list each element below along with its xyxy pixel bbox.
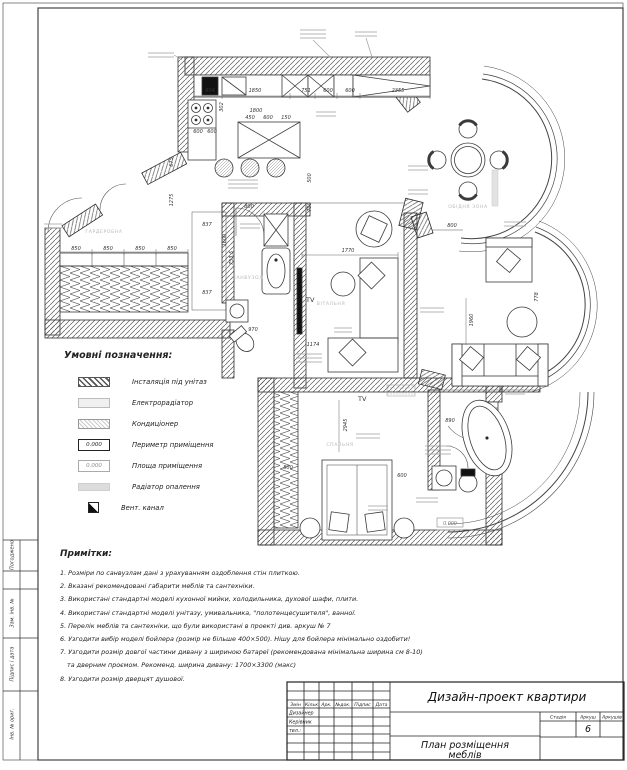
hanging-rail bbox=[60, 266, 188, 312]
note-line: 8. Узгодити розмір дверцят душової. bbox=[60, 673, 490, 686]
hatch-swatch bbox=[78, 377, 110, 387]
stamp-label: Погоджено bbox=[10, 540, 16, 570]
legend-label: Інсталяція під унітаз bbox=[132, 378, 207, 386]
dim: 837 bbox=[202, 290, 212, 296]
dim: 753,5 bbox=[229, 251, 235, 265]
area-value-box: 0.000 bbox=[78, 460, 110, 472]
pouf bbox=[331, 272, 355, 296]
bar-stool bbox=[215, 159, 233, 177]
bar-stool bbox=[267, 159, 285, 177]
dim: 970 bbox=[248, 327, 258, 333]
bathroom-se bbox=[432, 394, 521, 527]
tb-col: №док. bbox=[335, 702, 351, 708]
legend-item: Кондиціонер bbox=[64, 413, 279, 434]
note-line: 5. Перелік меблів та сантехніки, що були… bbox=[60, 620, 490, 633]
tb-col: Кільк bbox=[305, 702, 318, 708]
dim: 1174 bbox=[307, 342, 320, 348]
dim: 600 bbox=[345, 88, 355, 94]
dim: 675 bbox=[169, 157, 175, 167]
room-label-wardrobe: ГАРДЕРОБНА bbox=[85, 229, 123, 235]
dim: 800 bbox=[244, 204, 254, 210]
dim: 1770 bbox=[342, 248, 355, 254]
legend-label: Площа приміщення bbox=[132, 462, 202, 470]
note-line: 6. Узгодити вибір моделі бойлера (розмір… bbox=[60, 633, 490, 646]
dim: 500 bbox=[307, 173, 313, 183]
bedside-table bbox=[300, 518, 320, 538]
dim: 150 bbox=[281, 115, 291, 121]
project-title: Дизайн-проект квартири bbox=[427, 690, 587, 704]
area-value: 0.000 bbox=[443, 521, 457, 527]
notes: Примітки: 1. Розміри по санвузлам дані з… bbox=[60, 549, 490, 686]
dim: 850 bbox=[71, 246, 81, 252]
legend-item: Радіатор опалення bbox=[64, 476, 279, 497]
dim: 850 bbox=[167, 246, 177, 252]
dim: 2945 bbox=[343, 419, 349, 432]
dim: 1800 bbox=[250, 108, 263, 114]
dim: 800 bbox=[283, 465, 293, 471]
tb-role: тел.: bbox=[289, 729, 301, 734]
dim: 778 bbox=[534, 292, 540, 302]
tb-col: Арк. bbox=[320, 702, 331, 708]
legend-item: 0.000 Периметр приміщення bbox=[64, 434, 279, 455]
note-line: 7. Узгодити розмір довгої частини дивану… bbox=[60, 646, 490, 659]
tb-col: Підпис bbox=[354, 702, 371, 708]
notes-title: Примітки: bbox=[60, 549, 490, 559]
bed bbox=[322, 460, 392, 540]
tb-col: Дата bbox=[375, 702, 388, 708]
dim: 890 bbox=[445, 418, 455, 424]
dim: 600 bbox=[323, 88, 333, 94]
air-conditioner bbox=[387, 385, 415, 396]
light-swatch bbox=[78, 398, 110, 408]
armchair bbox=[486, 238, 532, 282]
stamp-label: Зам. інв. № bbox=[10, 598, 16, 627]
tb-role: Керівник bbox=[289, 720, 312, 726]
perimeter-value-box: 0.000 bbox=[78, 439, 110, 451]
sheet-number: 6 bbox=[585, 724, 591, 735]
legend-label: Периметр приміщення bbox=[132, 441, 214, 449]
legend-item: Інсталяція під унітаз bbox=[64, 371, 279, 392]
dim: 600 bbox=[263, 115, 273, 121]
room-label-living: ВІТАЛЬНЯ bbox=[317, 301, 346, 307]
dim: 600 bbox=[397, 473, 407, 479]
stamp-label: Інв. № ориг. bbox=[10, 708, 16, 739]
legend-item: Вент. канал bbox=[64, 497, 279, 518]
left-stamp: Погоджено Зам. інв. № Підпис і дата Інв.… bbox=[10, 540, 16, 740]
radiator-swatch bbox=[78, 483, 110, 491]
legend-label: Вент. канал bbox=[121, 504, 164, 512]
dim: 2355 bbox=[392, 88, 405, 94]
note-line: 2. Вказані рекомендовані габарити меблів… bbox=[60, 580, 490, 593]
tb-stage-col: Аркушів bbox=[601, 715, 622, 721]
note-line: 1. Розміри по санвузлам дані з урахуванн… bbox=[60, 567, 490, 580]
pillow bbox=[329, 512, 349, 532]
dim: 1275 bbox=[169, 194, 175, 207]
note-line: 3. Використані стандартні моделі кухонно… bbox=[60, 593, 490, 606]
dim: 1850 bbox=[249, 88, 262, 94]
dim: 604 bbox=[205, 88, 215, 94]
toilet bbox=[459, 469, 477, 492]
bedroom bbox=[274, 385, 498, 540]
window-sill bbox=[492, 170, 498, 206]
room-label-dining: ОБІДНЯ ЗОНА bbox=[448, 204, 488, 210]
tb-stage-col: Стадія bbox=[550, 715, 566, 721]
bar-stool bbox=[241, 159, 259, 177]
pillow bbox=[365, 512, 385, 532]
sofa bbox=[452, 344, 548, 386]
bathroom-center bbox=[226, 214, 290, 355]
dim: 800 bbox=[447, 223, 457, 229]
dim: 600 bbox=[207, 129, 217, 135]
dim: 850 bbox=[103, 246, 113, 252]
bedside-table bbox=[394, 518, 414, 538]
tv-panel bbox=[297, 268, 302, 334]
dim: 700 bbox=[307, 202, 313, 212]
dining-chair bbox=[490, 151, 508, 169]
note-line: 4. Використані стандартні моделі унітазу… bbox=[60, 607, 490, 620]
legend-label: Кондиціонер bbox=[132, 420, 178, 428]
light-hatch-swatch bbox=[78, 419, 110, 429]
note-line: та дверним проємом. Рекоменд. ширина див… bbox=[60, 659, 490, 672]
legend-title: Умовні позначення: bbox=[64, 350, 279, 361]
title-block-texts: Змін Кільк Арк. №док. Підпис Дата Дизайн… bbox=[288, 690, 622, 761]
dim: 1960 bbox=[469, 314, 475, 327]
tb-stage-col: Аркуш bbox=[579, 715, 597, 721]
legend-item: 0.000 Площа приміщення bbox=[64, 455, 279, 476]
dining-chair bbox=[428, 151, 446, 169]
dim: 450 bbox=[245, 115, 255, 121]
legend: Умовні позначення: Інсталяція під унітаз… bbox=[64, 350, 279, 518]
tv-label: TV bbox=[305, 296, 315, 304]
tb-col: Змін bbox=[290, 702, 301, 708]
vent-channel-icon bbox=[88, 502, 99, 513]
room-label-bedroom: СПАЛЬНЯ bbox=[326, 442, 353, 448]
dim: 1600 bbox=[222, 234, 228, 247]
drawing-sheet: Погоджено Зам. інв. № Підпис і дата Інв.… bbox=[0, 0, 627, 770]
room-label-bath: САНВУЗОЛ bbox=[233, 275, 264, 281]
tb-role: Дизайнер bbox=[288, 711, 314, 717]
stamp-label: Підпис і дата bbox=[10, 647, 16, 682]
dim: 600 bbox=[193, 129, 203, 135]
dim: 837 bbox=[202, 222, 212, 228]
tv-label: TV bbox=[357, 395, 367, 403]
dim: 850 bbox=[135, 246, 145, 252]
doc-title-line2: меблів bbox=[448, 750, 482, 761]
pouf bbox=[507, 307, 537, 337]
legend-label: Радіатор опалення bbox=[132, 483, 200, 491]
legend-item: Електрорадіатор bbox=[64, 392, 279, 413]
dining-area bbox=[428, 120, 508, 206]
dining-chair bbox=[459, 120, 477, 138]
dim: 751 bbox=[301, 88, 311, 94]
dining-chair bbox=[459, 182, 477, 200]
legend-label: Електрорадіатор bbox=[132, 399, 193, 407]
living-room bbox=[452, 238, 548, 386]
wardrobe-room bbox=[60, 253, 188, 312]
title-block: Змін Кільк Арк. №док. Підпис Дата Дизайн… bbox=[287, 682, 624, 761]
dim: 302 bbox=[219, 102, 225, 112]
